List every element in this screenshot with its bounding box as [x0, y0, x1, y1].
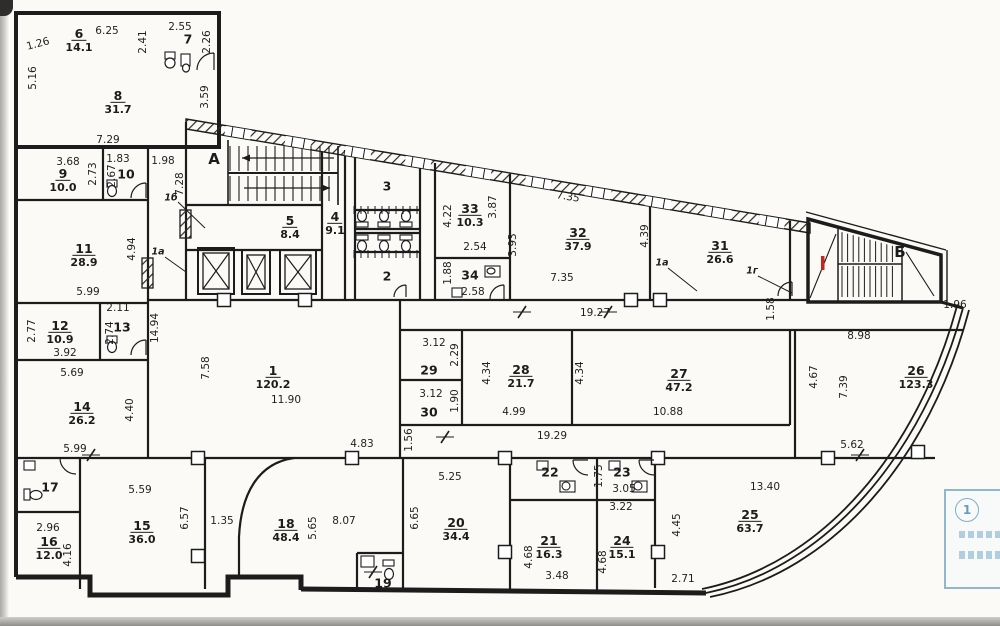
approval-stamp: 1: [944, 489, 1000, 589]
interior-walls: [16, 122, 963, 592]
stamp-circle: 1: [955, 498, 979, 522]
stamp-text-row: [959, 551, 1000, 559]
facade-curve: [702, 212, 969, 597]
stamp-text-row: [959, 531, 1000, 538]
fixtures-and-details: [24, 52, 934, 580]
stamp-circle-number: 1: [963, 503, 971, 517]
scan-edge-bottom: [0, 617, 1000, 626]
floorplan-drawing: [0, 0, 1000, 626]
outer-walls: [16, 13, 963, 595]
scan-edge-left: [0, 0, 9, 626]
floorplan-sheet: 1120.22349.158.4614.17831.7910.0101128.9…: [0, 0, 1000, 626]
